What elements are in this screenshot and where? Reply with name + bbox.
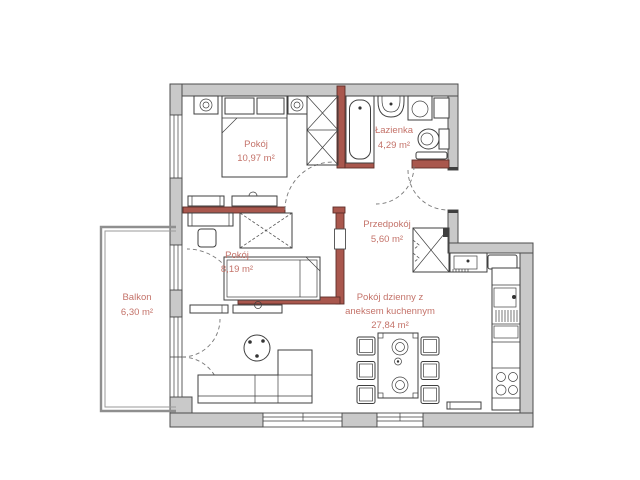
chair [198,229,216,247]
bedroom-2-area: 8,19 m² [221,264,253,275]
balcony-area: 6,30 m² [121,307,153,318]
bathroom-area: 4,29 m² [378,140,410,151]
dresser [188,196,224,206]
bedroom-2-furniture [188,213,320,300]
entrance-door-swing [408,170,448,210]
chair [421,337,439,355]
bedroom-1-name: Pokój [244,139,268,150]
bedroom-2-name: Pokój [225,250,249,261]
bedroom-2-window [170,245,182,290]
kitchenette [447,253,520,410]
washbasin [378,96,404,117]
bedroom-1-area: 10,97 m² [237,153,275,164]
living-room-furniture [190,302,312,404]
chair [357,362,375,380]
radiator-bench [447,402,481,409]
kitchen-sink-counter [450,253,487,272]
balcony-railing [101,227,176,411]
bedroom-1-door-swing [285,162,333,210]
hallway-area: 5,60 m² [371,234,403,245]
wardrobe [307,96,338,165]
washing-machine [408,96,432,120]
bathroom-name: Łazienka [375,125,414,136]
living-room-window-2 [377,413,423,427]
living-room-window-1 [263,413,342,427]
coffee-table [244,335,270,361]
bedroom-1-window [170,115,182,178]
wardrobe [240,213,292,248]
chair [421,362,439,380]
desk [188,213,233,226]
toilet [418,129,449,149]
entrance-mat [416,152,447,159]
living-room-area: 27,84 m² [371,320,409,331]
hallway-wardrobe [413,228,449,272]
dining-table [378,333,418,398]
floor-plan-drawing: Pokój 10,97 m² Łazienka 4,29 m² Przedpok… [0,0,640,480]
bedroom-1-furniture [188,96,338,206]
hallway-name: Przedpokój [363,219,411,230]
chair [357,337,375,355]
balcony-door-window [170,317,182,397]
dining-set [357,333,439,404]
hallway-furniture [413,228,449,272]
kitchen-counter-run [492,268,520,410]
bathtub [346,96,374,163]
dresser [232,192,277,206]
living-room-name-line-1: Pokój dzienny z [357,292,424,303]
sideboard [190,305,228,313]
living-room-name-line-2: aneksem kuchennym [345,306,435,317]
chair [421,386,439,404]
balcony-name: Balkon [122,292,151,303]
balcony-door-swing-upper [182,319,220,357]
double-bed [222,96,287,177]
fridge [488,255,517,269]
bathroom-cabinet [434,98,449,118]
floor-plan: Pokój 10,97 m² Łazienka 4,29 m² Przedpok… [0,0,640,480]
chair [357,386,375,404]
